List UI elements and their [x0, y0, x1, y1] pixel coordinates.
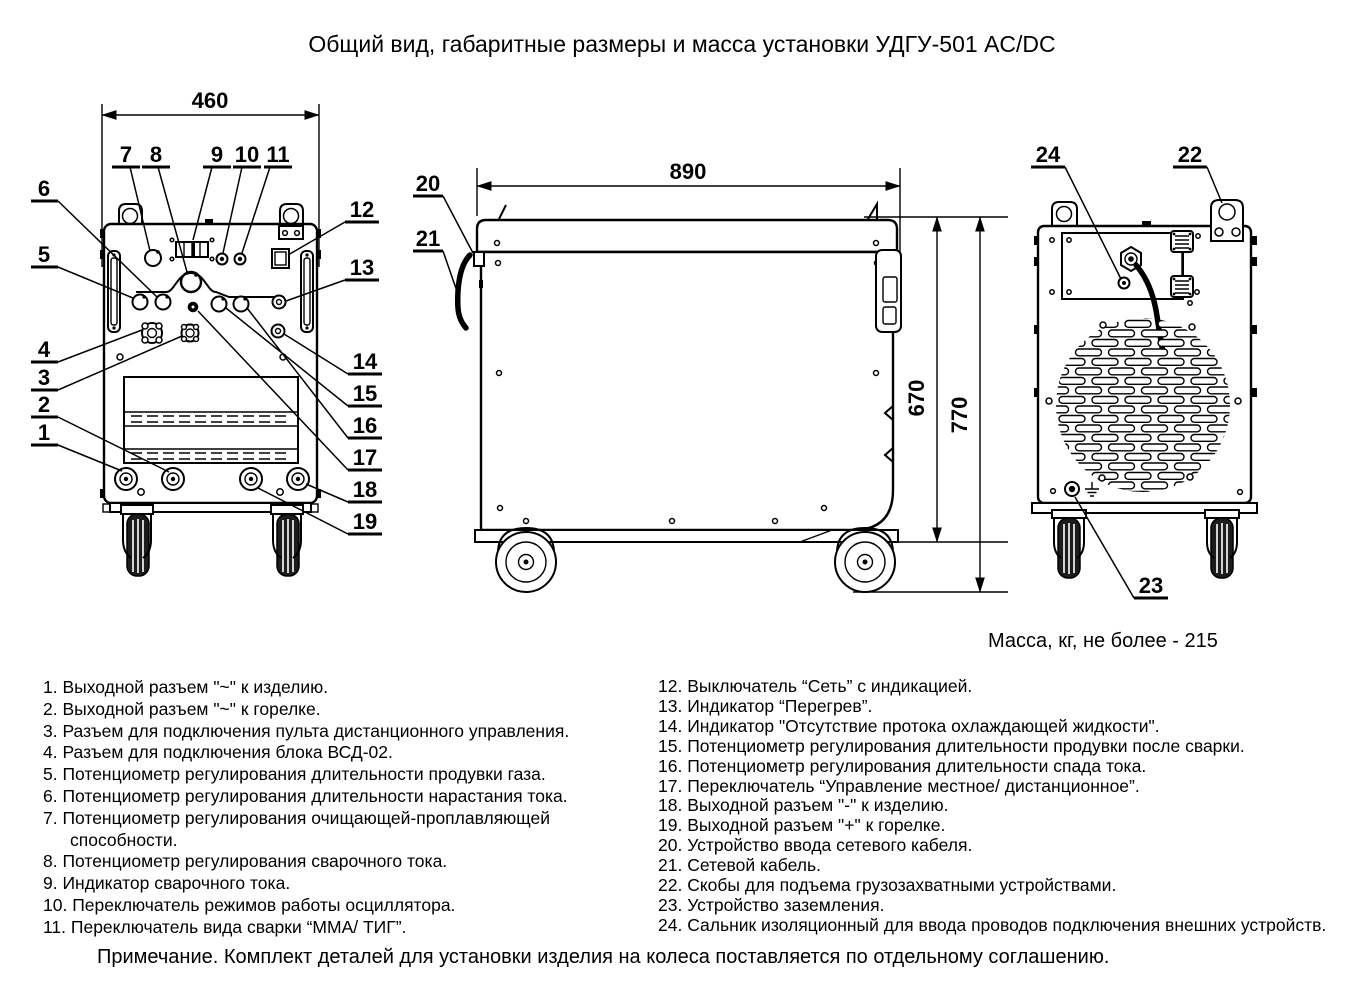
legend-item-3: 3. Разъем для подключения пульта дистанц…: [43, 721, 631, 743]
callout-16: 16: [353, 413, 377, 438]
callout-17: 17: [353, 445, 377, 470]
callout-19: 19: [353, 509, 377, 534]
legend-item-19: 19. Выходной разъем "+" к горелке.: [658, 816, 1364, 836]
gas-purge-knob: [133, 295, 148, 310]
cable-entry-device: [474, 252, 484, 266]
callout-12: 12: [350, 197, 374, 222]
mass-note: Масса, кг, не более - 215: [988, 630, 1218, 653]
legend-item-11: 11. Переключатель вида сварки “ММА/ ТИГ”…: [43, 917, 631, 939]
fan-grille: [1056, 318, 1230, 492]
callout-18: 18: [353, 477, 377, 502]
rear-base-and-wheels: [1032, 503, 1257, 578]
oscillator-mode-switch: [217, 254, 228, 265]
callout-14: 14: [353, 349, 378, 374]
knob-cleaning-penetration: [145, 250, 161, 266]
legend-item-15: 15. Потенциометр регулирования длительно…: [658, 737, 1364, 757]
legend-item-8: 8. Потенциометр регулирования сварочного…: [43, 851, 631, 873]
callout-9: 9: [211, 142, 223, 167]
callout-6: 6: [38, 176, 50, 201]
legend-item-2: 2. Выходной разъем "~" к горелке.: [43, 699, 631, 721]
front-view: 460: [31, 88, 382, 576]
legend-item-16: 16. Потенциометр регулирования длительно…: [658, 757, 1364, 777]
legend-item-21: 21. Сетевой кабель.: [658, 856, 1364, 876]
legend-item-17: 17. Переключатель “Управление местное/ д…: [658, 777, 1364, 797]
callout-13: 13: [350, 255, 374, 280]
legend-right-column: 12. Выключатель “Сеть” с индикацией. 13.…: [658, 677, 1364, 936]
legend-item-22: 22. Скобы для подъема грузозахватными ус…: [658, 876, 1364, 896]
callout-20: 20: [416, 171, 440, 196]
legend-left-column: 1. Выходной разъем "~" к изделию. 2. Вых…: [43, 677, 631, 939]
technical-drawing: 460: [0, 0, 1364, 665]
legend-item-1: 1. Выходной разъем "~" к изделию.: [43, 677, 631, 699]
local-remote-switch: [188, 302, 198, 312]
callout-15: 15: [353, 381, 377, 406]
legend-item-10: 10. Переключатель режимов работы осцилля…: [43, 895, 631, 917]
callout-10: 10: [235, 142, 259, 167]
rear-lug-right: [1211, 200, 1243, 241]
legend-item-12: 12. Выключатель “Сеть” с индикацией.: [658, 677, 1364, 697]
callout-21: 21: [416, 226, 440, 251]
vsd02-connector: [142, 323, 162, 343]
power-switch: [272, 249, 289, 268]
callout-11: 11: [266, 142, 289, 167]
legend-item-4: 4. Разъем для подключения блока ВСД-02.: [43, 742, 631, 764]
callout-2: 2: [38, 392, 50, 417]
current-indicator-display: [170, 238, 214, 261]
dim-overall-height: 770: [947, 397, 972, 434]
post-weld-purge-knob: [212, 297, 227, 312]
callout-22: 22: [1178, 142, 1202, 167]
front-base-and-wheels: [103, 503, 318, 576]
coolant-flow-indicator: [272, 325, 285, 338]
side-callouts: 20 21: [413, 171, 473, 300]
legend-item-18: 18. Выходной разъем "-" к изделию.: [658, 796, 1364, 816]
diagram-page: Общий вид, габаритные размеры и масса ус…: [0, 0, 1364, 992]
rear-latch-bracket: [876, 250, 901, 332]
legend-item-13: 13. Индикатор “Перегрев”.: [658, 697, 1364, 717]
callout-24: 24: [1036, 142, 1061, 167]
callout-7: 7: [120, 142, 132, 167]
legend-item-24: 24. Сальник изоляционный для ввода прово…: [658, 916, 1364, 936]
callout-4: 4: [38, 337, 51, 362]
legend-item-23: 23. Устройство заземления.: [658, 896, 1364, 916]
side-body: [481, 252, 893, 530]
dim-body-height: 670: [904, 380, 929, 417]
legend-item-7: 7. Потенциометр регулирования очищающей-…: [43, 808, 631, 852]
overheat-indicator: [273, 296, 286, 309]
weld-type-switch: [235, 254, 246, 265]
side-lid: [477, 220, 897, 252]
side-view: 890: [413, 159, 1008, 592]
rear-view: 24 22 23: [1031, 142, 1257, 598]
legend-item-9: 9. Индикатор сварочного тока.: [43, 873, 631, 895]
callout-5: 5: [38, 242, 50, 267]
current-rise-knob: [156, 295, 171, 310]
callout-1: 1: [38, 420, 50, 445]
footnote: Примечание. Комплект деталей для установ…: [97, 946, 1109, 969]
dim-front-width: 460: [192, 88, 229, 113]
rear-top-panel: [1050, 233, 1183, 299]
dim-depth: 890: [670, 159, 707, 184]
current-decay-knob: [234, 297, 249, 312]
callout-23: 23: [1139, 573, 1163, 598]
legend-item-14: 14. Индикатор "Отсутствие протока охлажд…: [658, 717, 1364, 737]
legend-item-20: 20. Устройство ввода сетевого кабеля.: [658, 836, 1364, 856]
callout-3: 3: [38, 365, 50, 390]
legend-item-6: 6. Потенциометр регулирования длительнос…: [43, 786, 631, 808]
legend-item-5: 5. Потенциометр регулирования длительнос…: [43, 764, 631, 786]
remote-control-connector: [182, 325, 199, 342]
insulating-gland: [1119, 278, 1130, 289]
callout-8: 8: [150, 142, 162, 167]
power-cable: [458, 255, 470, 328]
